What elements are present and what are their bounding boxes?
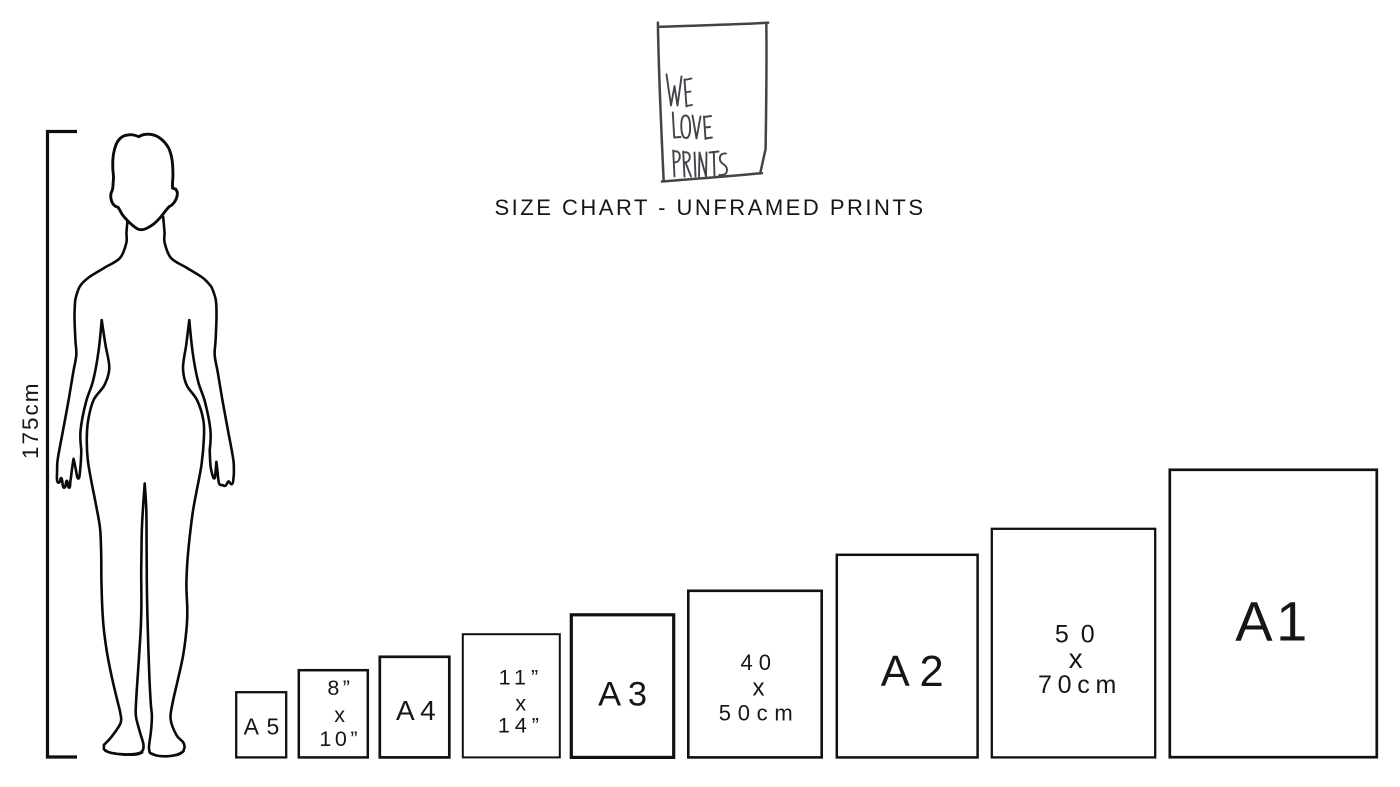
svg-text:8”: 8” [327,676,353,700]
svg-text:A5: A5 [244,714,287,740]
svg-text:40: 40 [741,650,777,675]
svg-text:50cm: 50cm [719,701,800,726]
svg-text:A1: A1 [1235,590,1311,653]
svg-text:11”: 11” [499,665,543,689]
svg-text:x: x [515,692,531,716]
svg-text:A2: A2 [881,648,954,696]
svg-text:A3: A3 [598,676,654,714]
svg-text:SIZE CHART - UNFRAMED PRINTS: SIZE CHART - UNFRAMED PRINTS [495,195,926,220]
svg-text:x: x [334,703,348,727]
svg-text:x: x [1069,643,1090,674]
svg-text:x: x [753,675,771,702]
svg-text:14”: 14” [498,713,544,737]
svg-text:70cm: 70cm [1038,671,1122,699]
svg-text:175cm: 175cm [18,381,43,459]
svg-text:10”: 10” [319,727,361,751]
svg-text:A4: A4 [396,695,441,726]
